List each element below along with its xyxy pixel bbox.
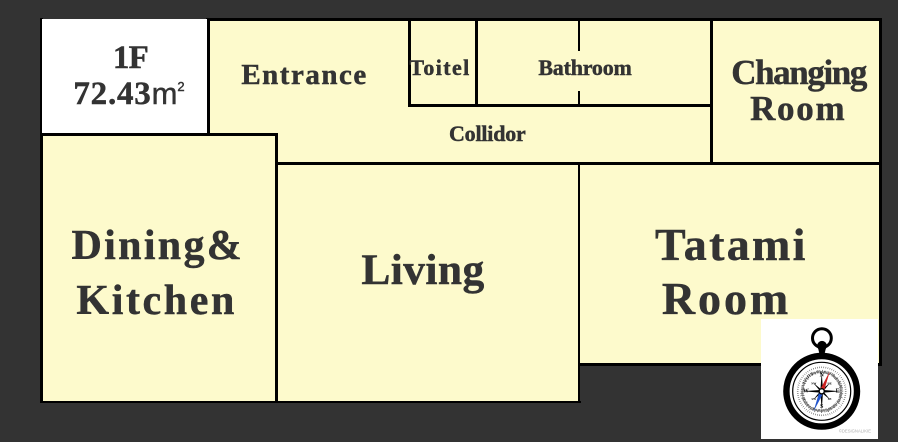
svg-text:©DESIGNALIKIE: ©DESIGNALIKIE: [838, 428, 870, 433]
svg-text:E: E: [835, 388, 839, 394]
svg-text:W: W: [803, 388, 809, 394]
svg-text:S: S: [820, 404, 823, 410]
svg-text:NE: NE: [827, 381, 831, 385]
svg-text:NW: NW: [811, 381, 816, 385]
svg-text:SW: SW: [811, 397, 816, 401]
svg-text:SE: SE: [827, 397, 831, 401]
